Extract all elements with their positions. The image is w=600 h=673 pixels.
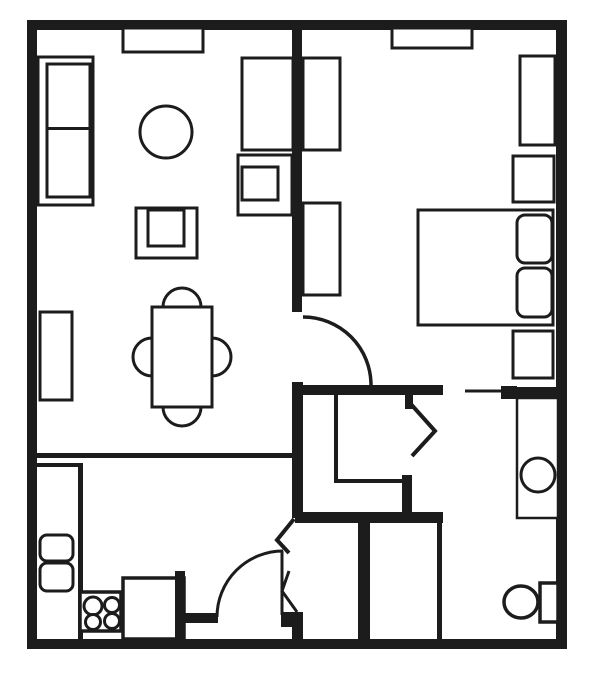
bed-pillow-1 bbox=[517, 215, 552, 263]
bathroom-door-block bbox=[501, 386, 517, 399]
bedroom-dresser-lower bbox=[303, 203, 340, 295]
bedroom-bottom-wall bbox=[292, 385, 443, 395]
dining-chair-right bbox=[212, 338, 231, 376]
sofa-cushion-divider bbox=[47, 127, 90, 130]
living-wall-shelf bbox=[123, 28, 203, 52]
counter-edge-top bbox=[36, 463, 83, 467]
stove-burner-1 bbox=[84, 597, 102, 615]
dining-chair-left bbox=[133, 338, 152, 376]
toilet-bowl bbox=[504, 586, 538, 618]
floorplan-svg bbox=[0, 0, 600, 673]
bedroom-tall-dresser bbox=[520, 56, 555, 145]
living-side-shelf bbox=[40, 312, 72, 400]
stove-burner-2 bbox=[105, 598, 120, 613]
bedroom-dresser-upper bbox=[303, 58, 340, 150]
kitchen-door-stub bbox=[183, 613, 218, 623]
bedroom-wall-shelf bbox=[392, 28, 472, 48]
hall-closet-wall-left bbox=[334, 395, 338, 482]
entry-bifold-lower bbox=[282, 571, 297, 612]
dining-table bbox=[152, 307, 212, 407]
pantry-right-wall bbox=[175, 571, 185, 639]
kitchen-sink-basin-2 bbox=[40, 563, 73, 591]
kitchen-divider-halfwall bbox=[36, 453, 295, 458]
stove-burner-3 bbox=[86, 615, 101, 630]
hall-closet-wall-bottom bbox=[334, 479, 406, 483]
sofa-cushions bbox=[47, 64, 90, 197]
toilet-tank bbox=[540, 583, 558, 622]
bedroom-cabinet bbox=[513, 156, 554, 202]
entry-closet-right-wall bbox=[437, 523, 442, 639]
stove-burner-4 bbox=[105, 614, 120, 629]
bedroom-bottom-wall-right bbox=[517, 387, 557, 397]
round-side-table bbox=[140, 106, 192, 158]
pantry bbox=[123, 578, 184, 639]
bed-pillow-2 bbox=[517, 268, 552, 317]
tv-stand-inner bbox=[242, 167, 278, 200]
entry-closet-left-wall bbox=[358, 515, 370, 648]
entry-door-arc bbox=[217, 551, 283, 617]
floorplan-page bbox=[0, 0, 600, 673]
closet-bifold-door bbox=[409, 402, 435, 456]
entry-bifold-upper bbox=[277, 519, 294, 553]
kitchen-sink-basin-1 bbox=[40, 535, 73, 561]
dining-chair-top bbox=[163, 288, 201, 307]
nightstand bbox=[513, 331, 553, 378]
outer-wall-right bbox=[556, 20, 567, 649]
hall-vertical-wall bbox=[292, 382, 303, 518]
media-console bbox=[242, 58, 293, 150]
armchair-inner bbox=[148, 210, 184, 246]
outer-wall-left bbox=[27, 20, 37, 649]
entry-lower-wall bbox=[292, 613, 303, 648]
bathroom-sink bbox=[521, 458, 555, 492]
bedroom-door-arc bbox=[303, 317, 371, 385]
dining-chair-bottom bbox=[163, 407, 201, 426]
